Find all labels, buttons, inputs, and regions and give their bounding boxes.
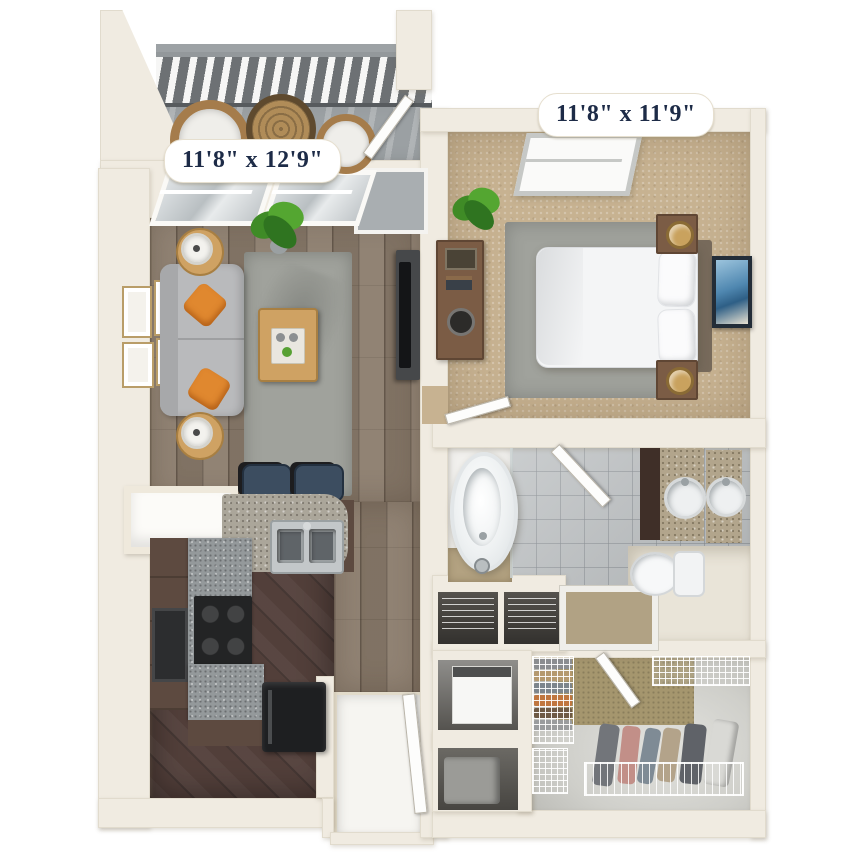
kitchen-counter-bottom	[188, 664, 264, 720]
dresser	[436, 240, 484, 360]
bedroom-dimension-label: 11'8" x 11'9"	[538, 93, 714, 137]
sink-basin-right	[309, 529, 336, 563]
dresser-books	[446, 276, 472, 290]
nightstand-lamp-bottom	[666, 367, 694, 395]
sink-basin-left	[277, 529, 304, 563]
stove	[194, 596, 252, 666]
kitchen-sink	[270, 520, 344, 574]
tray-cup-1	[276, 333, 285, 342]
bathtub-drain	[479, 532, 487, 540]
table-lamp-bottom	[181, 417, 213, 449]
entry-threshold-lip	[330, 832, 434, 845]
vanity-sink-right	[706, 477, 746, 517]
nightstand-lamp-top	[666, 221, 694, 249]
bedroom-bathroom-wall	[432, 418, 766, 448]
closet-wire-rack-bottom	[584, 762, 744, 796]
living-window-2-mullion	[271, 190, 352, 194]
living-room-dimension-label: 11'8" x 12'9"	[164, 139, 341, 183]
living-window-1-mullion	[159, 190, 252, 194]
bedroom-wall-art	[712, 256, 752, 328]
sofa-seat-seam	[178, 338, 244, 340]
vanity-cabinet	[640, 448, 660, 540]
linen-niche-right	[504, 592, 560, 644]
sofa-back-cushion	[160, 264, 178, 416]
balcony-corner-pillar	[396, 10, 432, 90]
right-wall	[750, 108, 766, 838]
refrigerator	[262, 682, 326, 752]
sink-faucet	[303, 522, 311, 530]
tray-cup-2	[289, 333, 298, 342]
bed-pillow-top	[657, 250, 697, 307]
toilet	[630, 550, 704, 594]
oven	[152, 608, 188, 682]
dresser-picture-frame	[445, 248, 477, 270]
closet-shelf-top-right	[652, 656, 750, 686]
lamp-finial	[193, 245, 200, 252]
bedroom-skylight-window	[513, 133, 642, 196]
refrigerator-handle	[268, 690, 272, 744]
coffee-table-tray	[271, 328, 305, 364]
utility-niche-top	[438, 660, 518, 730]
hanging-towels	[444, 757, 500, 804]
bathtub-faucet	[474, 558, 490, 574]
sink-faucet	[722, 478, 730, 486]
wall-art-frame-1	[122, 286, 152, 338]
water-heater	[452, 666, 512, 724]
skylight-mullion	[526, 159, 623, 162]
bathtub	[450, 452, 518, 572]
bottom-wall-left	[98, 798, 334, 828]
lamp-finial	[193, 429, 200, 436]
tray-plant	[282, 347, 292, 357]
coffee-table	[258, 308, 318, 382]
bedroom-doorway-threshold	[422, 386, 448, 424]
bed-pillow-bottom	[657, 308, 697, 364]
floor-plan: 11'8" x 12'9" 11'8" x 11'9"	[0, 0, 860, 860]
shower-pan	[560, 586, 658, 650]
linen-wire-shelves	[442, 595, 494, 629]
linen-wire-shelves	[508, 595, 556, 629]
linen-niche-left	[438, 592, 498, 644]
bottom-wall-right	[432, 810, 766, 838]
sink-faucet	[681, 478, 689, 486]
vanity-sink-left	[664, 477, 706, 519]
closet-shelf-lower-left	[532, 748, 568, 794]
dresser-bowl	[447, 308, 475, 336]
toilet-tank	[673, 551, 705, 597]
tv	[399, 262, 411, 368]
living-plant	[250, 202, 308, 256]
wall-art-frame-3	[122, 342, 154, 388]
bedroom-plant	[452, 188, 504, 238]
table-lamp-top	[181, 233, 213, 265]
utility-niche-bottom	[438, 748, 518, 810]
closet-shelf-tower	[532, 656, 574, 744]
kitchen-cabinet-bottom-face	[188, 720, 264, 746]
duvet-fold	[537, 248, 583, 365]
shelf-tower-wire	[532, 656, 574, 744]
